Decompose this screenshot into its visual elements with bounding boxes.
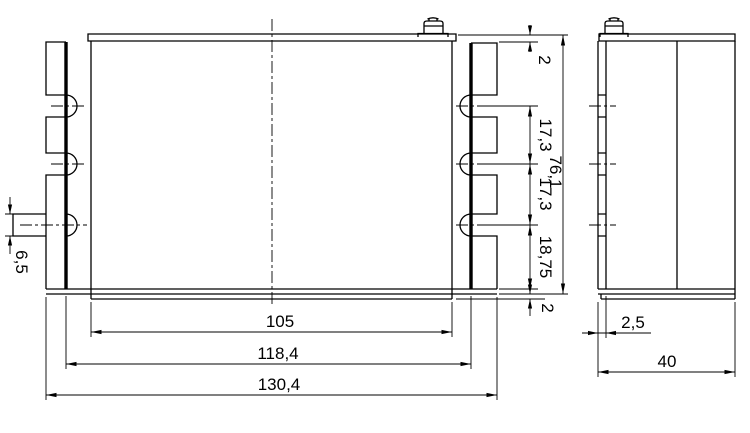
front-width-dimensions: 105 118,4 130,4 [46,312,497,397]
front-right-tabs [471,43,497,289]
front-right-slot-centerlines [456,93,491,238]
dim-label-depth: 40 [658,352,677,371]
dim-label-tab-height: 6,5 [12,250,31,274]
front-base-plate [46,289,497,299]
side-slot-centerlines [589,106,616,225]
dim-label-overall-width: 130,4 [258,375,301,394]
dim-label-flange-width: 118,4 [257,344,298,363]
screw-terminal-front [418,18,448,37]
extension-lines [5,35,735,400]
front-left-tabs [46,42,66,289]
side-lid [599,34,735,41]
technical-drawing-canvas: 2 17,3 17,3 18,75 2 76,1 6,5 105 118,4 1… [0,0,750,433]
dim-label-base-thickness: 2 [538,303,557,312]
front-view [13,18,497,299]
centerlines [20,19,616,307]
drawing-sheet: 2 17,3 17,3 18,75 2 76,1 6,5 105 118,4 1… [0,0,750,433]
side-view [598,18,735,299]
dim-label-overall-height: 76,1 [546,155,565,188]
dim-label-slot-to-base: 18,75 [536,236,555,279]
side-base-plate [598,289,735,299]
side-plate-ticks [598,95,606,236]
side-mounting-plate [598,41,606,289]
dim-label-plate-thickness: 2,5 [621,313,645,332]
screw-terminal-side [600,18,628,37]
dim-label-slot-pitch-1: 17,3 [536,118,555,151]
dim-label-body-width: 105 [266,312,294,331]
dim-label-lid-thickness: 2 [535,55,554,64]
side-dimensions: 2,5 40 [582,313,735,374]
